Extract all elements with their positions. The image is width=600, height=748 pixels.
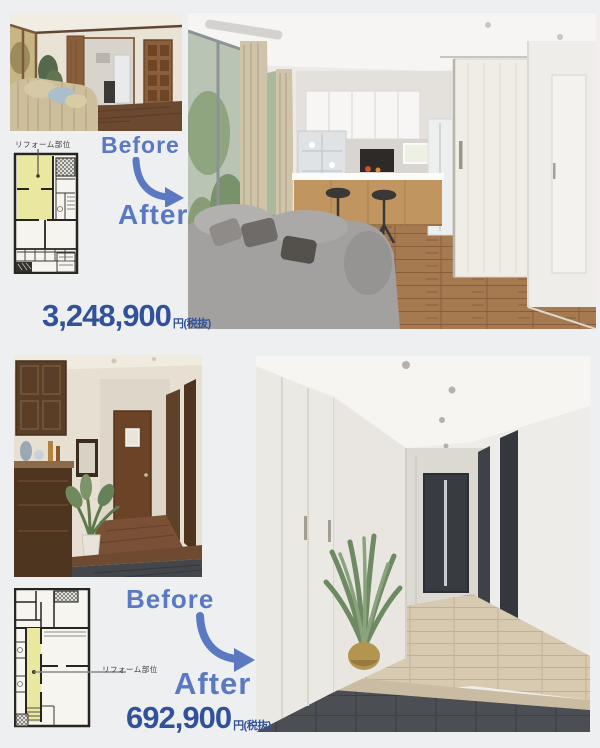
- price-2-unit: 円(税抜): [231, 721, 271, 733]
- back-hall: [406, 448, 490, 616]
- after-label-2: After: [174, 666, 251, 702]
- closet-handle: [304, 516, 307, 540]
- picture-frame: [76, 439, 98, 477]
- after-photo-ldk: [188, 13, 596, 329]
- before-label-2: Before: [126, 584, 214, 615]
- before-photo-hallway: [14, 355, 202, 577]
- closet: [256, 366, 334, 732]
- side-door-2: [184, 379, 196, 553]
- upper-cabinet: [16, 361, 66, 435]
- kitchen: [292, 71, 453, 235]
- island-countertop: [292, 173, 444, 180]
- far-door: [552, 75, 586, 273]
- side-door-1: [166, 389, 180, 541]
- price-2: 692,900円(税抜): [126, 702, 271, 733]
- floorplan-1: [13, 149, 79, 274]
- closet-handle: [328, 520, 331, 542]
- after-photo-hallway: [256, 356, 590, 732]
- hallway-back: [86, 379, 196, 557]
- door-handle: [459, 141, 463, 169]
- plan2-label: リフォーム部位: [102, 664, 158, 675]
- before-label-1: Before: [101, 132, 180, 159]
- paneled-door: [144, 40, 172, 106]
- price-1-unit: 円(税抜): [171, 319, 211, 331]
- price-1: 3,248,900円(税抜): [42, 300, 211, 331]
- before-to-after-arrow-2: [190, 612, 256, 672]
- price-1-amount: 3,248,900: [42, 300, 171, 331]
- bottle: [48, 441, 53, 461]
- kitchen-window: [404, 144, 428, 163]
- after-label-1: After: [118, 199, 188, 231]
- before-photo-living-room: [10, 13, 182, 131]
- lower-cabinet: [14, 441, 74, 577]
- vase: [20, 441, 32, 461]
- right-wall: [528, 41, 596, 329]
- renovation-flyer: リフォーム部位: [0, 0, 600, 748]
- price-2-amount: 692,900: [126, 702, 231, 733]
- back-door: [114, 411, 151, 521]
- right-door-1: [478, 446, 490, 618]
- sliding-door: [440, 57, 534, 277]
